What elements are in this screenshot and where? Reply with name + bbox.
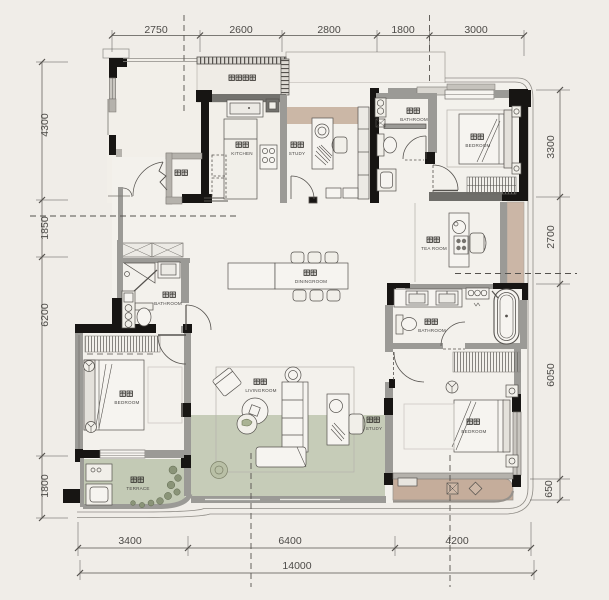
svg-text:1850: 1850 (39, 216, 51, 240)
svg-text:2600: 2600 (229, 24, 253, 36)
svg-text:TEA ROOM: TEA ROOM (421, 246, 447, 251)
svg-text:TERRACE: TERRACE (126, 486, 149, 491)
svg-text:BATHROOM: BATHROOM (400, 117, 428, 122)
svg-text:BEDROOM: BEDROOM (461, 429, 486, 434)
svg-text:14000: 14000 (282, 560, 311, 572)
svg-text:1800: 1800 (391, 24, 415, 36)
svg-text:BEDROOM: BEDROOM (114, 400, 139, 405)
svg-text:2800: 2800 (317, 24, 341, 36)
svg-text:BATHROOM: BATHROOM (418, 328, 446, 333)
svg-text:DININGROOM: DININGROOM (295, 279, 327, 284)
svg-text:4200: 4200 (445, 535, 469, 547)
svg-text:4300: 4300 (39, 113, 51, 137)
svg-text:650: 650 (543, 480, 555, 498)
svg-text:6200: 6200 (39, 303, 51, 327)
svg-text:3300: 3300 (545, 135, 557, 159)
svg-text:STUDY: STUDY (289, 151, 306, 156)
svg-text:3400: 3400 (118, 535, 142, 547)
svg-text:LIVINGROOM: LIVINGROOM (245, 388, 276, 393)
svg-text:6050: 6050 (545, 363, 557, 387)
svg-text:KITCHEN: KITCHEN (231, 151, 253, 156)
svg-text:1800: 1800 (39, 474, 51, 498)
svg-text:BEDROOM: BEDROOM (465, 143, 490, 148)
svg-text:BATHROOM: BATHROOM (154, 301, 182, 306)
svg-text:2750: 2750 (144, 24, 168, 36)
svg-text:3000: 3000 (464, 24, 488, 36)
svg-text:6400: 6400 (278, 535, 302, 547)
svg-text:STUDY: STUDY (366, 426, 383, 431)
svg-text:2700: 2700 (545, 225, 557, 249)
